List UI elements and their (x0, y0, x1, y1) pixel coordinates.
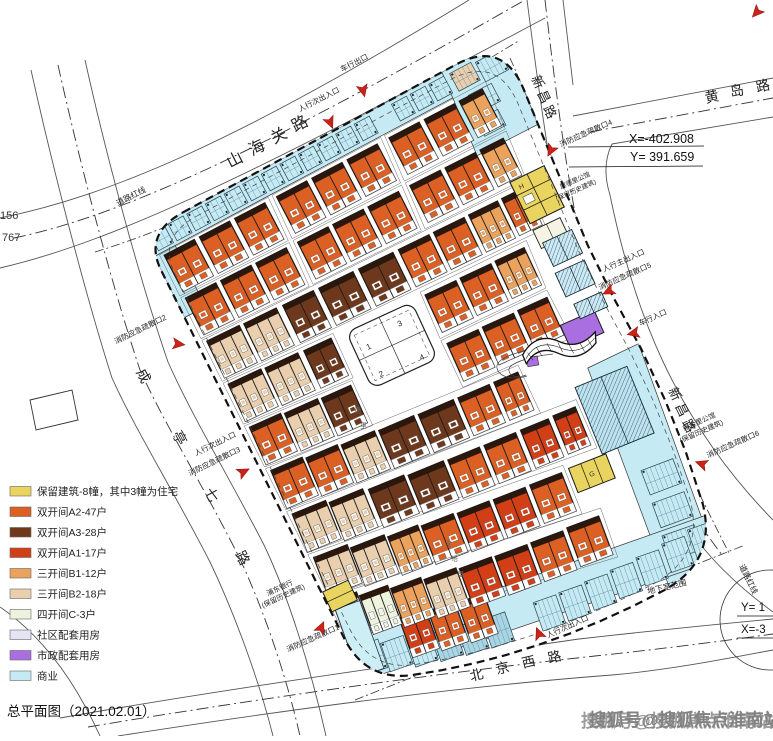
svg-text:四开间C-3户: 四开间C-3户 (37, 608, 96, 621)
svg-text:双开间A3-28户: 双开间A3-28户 (37, 526, 107, 539)
svg-text:Y= 1: Y= 1 (741, 602, 765, 614)
svg-text:里: 里 (457, 570, 464, 578)
svg-text:保留建筑-8幢，其中3幢为住宅: 保留建筑-8幢，其中3幢为住宅 (37, 485, 178, 498)
svg-text:社区配套用房: 社区配套用房 (37, 629, 100, 642)
svg-text:商业: 商业 (37, 670, 58, 683)
svg-text:156: 156 (0, 210, 18, 222)
svg-text:X=-3: X=-3 (741, 624, 766, 636)
svg-text:市政配套用房: 市政配套用房 (37, 649, 100, 662)
svg-text:双开间A1-17户: 双开间A1-17户 (37, 547, 107, 560)
svg-text:搜狐号@搜狐焦点淮南站: 搜狐号@搜狐焦点淮南站 (589, 710, 773, 730)
svg-text:里: 里 (360, 422, 367, 430)
svg-text:X=-402.908: X=-402.908 (629, 132, 694, 146)
svg-text:三开间B1-12户: 三开间B1-12户 (37, 567, 107, 580)
svg-text:三开间B2-18户: 三开间B2-18户 (37, 588, 107, 601)
svg-text:双开间A2-47户: 双开间A2-47户 (37, 506, 107, 519)
svg-text:767: 767 (2, 232, 20, 244)
svg-text:塔: 塔 (451, 554, 458, 563)
svg-text:总平面图（2021.02.01）: 总平面图（2021.02.01） (7, 704, 156, 719)
svg-text:Y= 391.659: Y= 391.659 (630, 150, 694, 164)
svg-text:宝: 宝 (445, 539, 452, 548)
svg-text:德: 德 (354, 406, 361, 415)
